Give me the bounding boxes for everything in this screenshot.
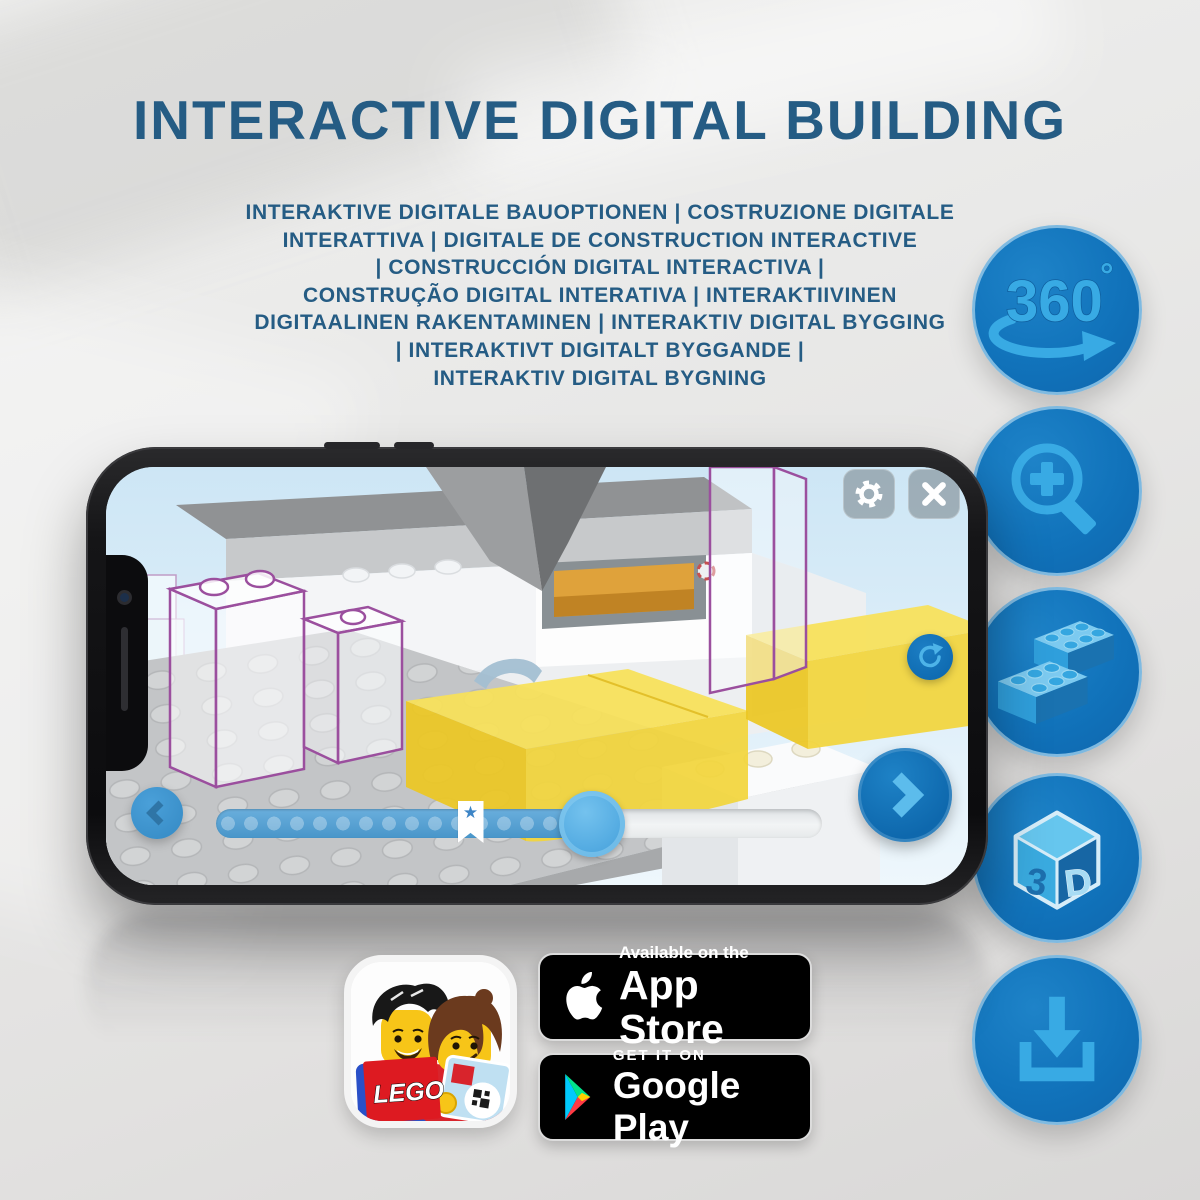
phone-volume-button — [324, 442, 380, 449]
360-rotation-icon: 360 ° — [982, 235, 1132, 385]
build-progress-slider[interactable]: ★ — [216, 809, 822, 838]
lego-brick-icon — [996, 611, 1118, 733]
feature-download-badge — [972, 955, 1142, 1125]
feature-360-badge: 360 ° — [972, 225, 1142, 395]
next-step-button[interactable] — [858, 748, 952, 842]
marketing-banner: INTERACTIVE DIGITAL BUILDING INTERAKTIVE… — [0, 0, 1200, 1200]
lego-app-icon[interactable]: LEGO — [344, 955, 517, 1128]
svg-text:D: D — [1062, 860, 1094, 905]
lego-minifigures-artwork: LEGO — [351, 962, 511, 1122]
svg-text:°: ° — [1100, 257, 1114, 295]
google-play-badge[interactable]: GET IT ON Google Play — [538, 1053, 812, 1141]
google-play-icon — [560, 1074, 597, 1120]
phone-side-button — [394, 442, 434, 449]
page-title: INTERACTIVE DIGITAL BUILDING — [0, 88, 1200, 152]
close-button[interactable] — [908, 469, 960, 519]
3d-cube-icon: 3 D — [995, 796, 1119, 920]
phone-notch — [106, 555, 148, 771]
chevron-right-icon — [879, 769, 931, 821]
phone-mockup: ★ — [86, 447, 988, 905]
app-store-name: App Store — [619, 963, 810, 1051]
gear-icon — [853, 478, 885, 510]
phone-reflection — [86, 912, 988, 1062]
slider-fill — [216, 809, 592, 838]
chevron-left-icon — [142, 798, 172, 828]
close-icon — [919, 479, 949, 509]
speaker-grille — [121, 627, 128, 711]
app-store-tagline: Available on the — [619, 943, 810, 963]
apple-icon — [562, 972, 603, 1022]
subtitle-line: INTERAKTIVE DIGITALE BAUOPTIONEN | COSTR… — [0, 199, 1200, 227]
google-play-tagline: GET IT ON — [613, 1046, 810, 1065]
feature-brick-badge — [972, 587, 1142, 757]
feature-3d-badge: 3 D — [972, 773, 1142, 943]
download-icon — [998, 981, 1116, 1099]
app-store-badge[interactable]: Available on the App Store — [538, 953, 812, 1041]
google-play-name: Google Play — [613, 1065, 810, 1149]
rotate-view-button[interactable] — [907, 634, 953, 680]
svg-text:360: 360 — [1006, 269, 1103, 334]
zoom-in-icon — [997, 431, 1117, 551]
previous-step-button[interactable] — [131, 787, 183, 839]
rotate-arrow-icon — [914, 641, 946, 673]
feature-zoom-badge — [972, 406, 1142, 576]
front-camera — [120, 593, 129, 602]
settings-button[interactable] — [843, 469, 895, 519]
slider-thumb[interactable] — [559, 791, 625, 857]
phone-screen: ★ — [106, 467, 968, 885]
svg-text:LEGO: LEGO — [372, 1076, 445, 1109]
